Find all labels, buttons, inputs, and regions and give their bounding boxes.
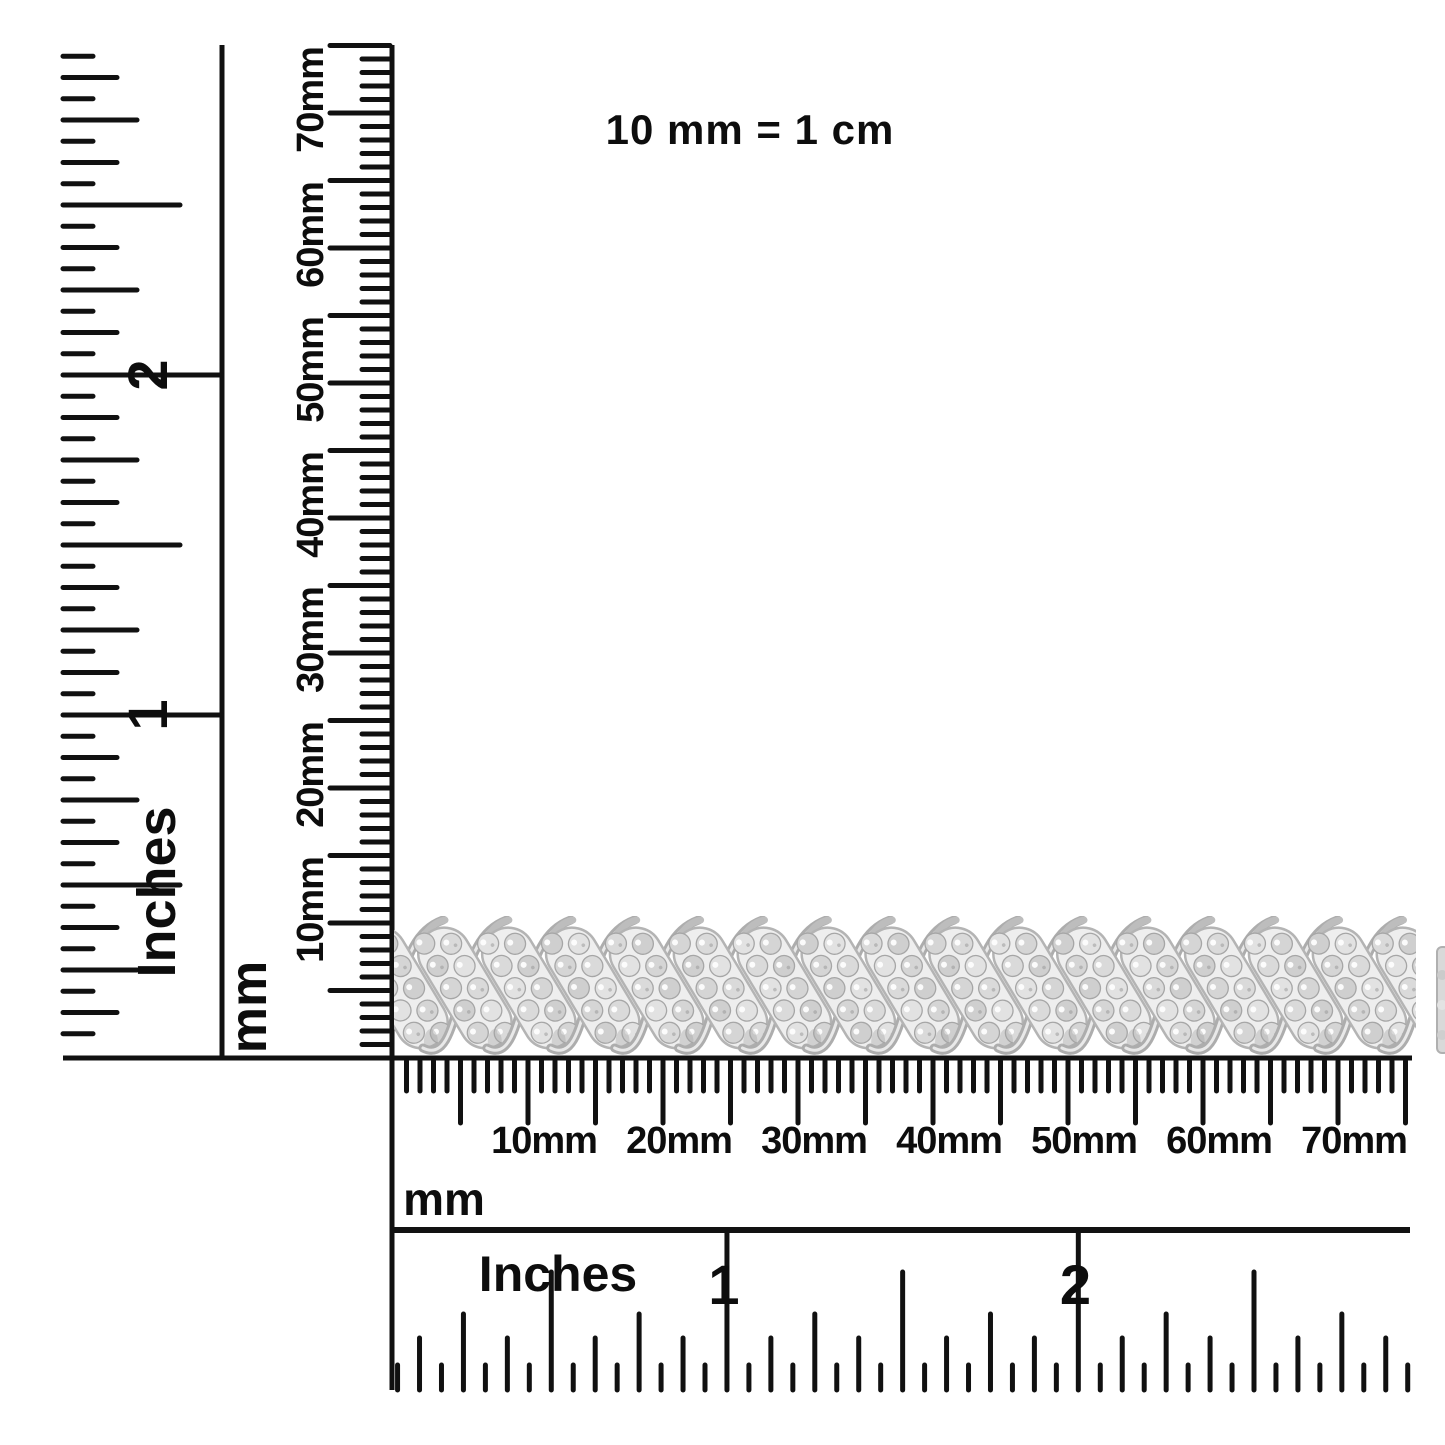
diamond-bracelet	[343, 915, 1445, 1061]
bottom-inch-number-label: 1	[708, 1257, 739, 1313]
horizontal-mm-tick-label: 10mm	[491, 1122, 597, 1160]
left-inch-number-label: 2	[120, 359, 176, 390]
bottom-inch-ruler-unit-label: Inches	[479, 1249, 637, 1299]
bracelet-clasp-sliver	[1437, 947, 1445, 1053]
horizontal-mm-tick-label: 30mm	[761, 1122, 867, 1160]
horizontal-mm-tick-label: 40mm	[896, 1122, 1002, 1160]
vertical-mm-tick-label: 50mm	[292, 317, 330, 423]
vertical-mm-tick-label: 20mm	[292, 722, 330, 828]
horizontal-mm-tick-label: 50mm	[1031, 1122, 1137, 1160]
bracelet-measurement-graphic: 10 mm = 1 cm Inches mm mm Inches 1210mm2…	[0, 0, 1445, 1445]
vertical-mm-tick-label: 60mm	[292, 182, 330, 288]
left-inch-ruler-unit-label: Inches	[130, 806, 184, 977]
vertical-mm-ruler-unit-label: mm	[223, 961, 275, 1053]
horizontal-mm-tick-label: 20mm	[626, 1122, 732, 1160]
rulers-and-bracelet-artwork	[0, 0, 1445, 1445]
vertical-mm-tick-label: 10mm	[292, 857, 330, 963]
bottom-inch-number-label: 2	[1060, 1257, 1091, 1313]
left-inch-number-label: 1	[120, 699, 176, 730]
vertical-mm-tick-label: 70mm	[292, 47, 330, 153]
horizontal-mm-tick-label: 70mm	[1301, 1122, 1407, 1160]
horizontal-mm-tick-label: 60mm	[1166, 1122, 1272, 1160]
scale-note: 10 mm = 1 cm	[606, 109, 895, 151]
vertical-mm-tick-label: 40mm	[292, 452, 330, 558]
horizontal-mm-ruler-unit-label: mm	[403, 1176, 485, 1222]
vertical-mm-tick-label: 30mm	[292, 587, 330, 693]
